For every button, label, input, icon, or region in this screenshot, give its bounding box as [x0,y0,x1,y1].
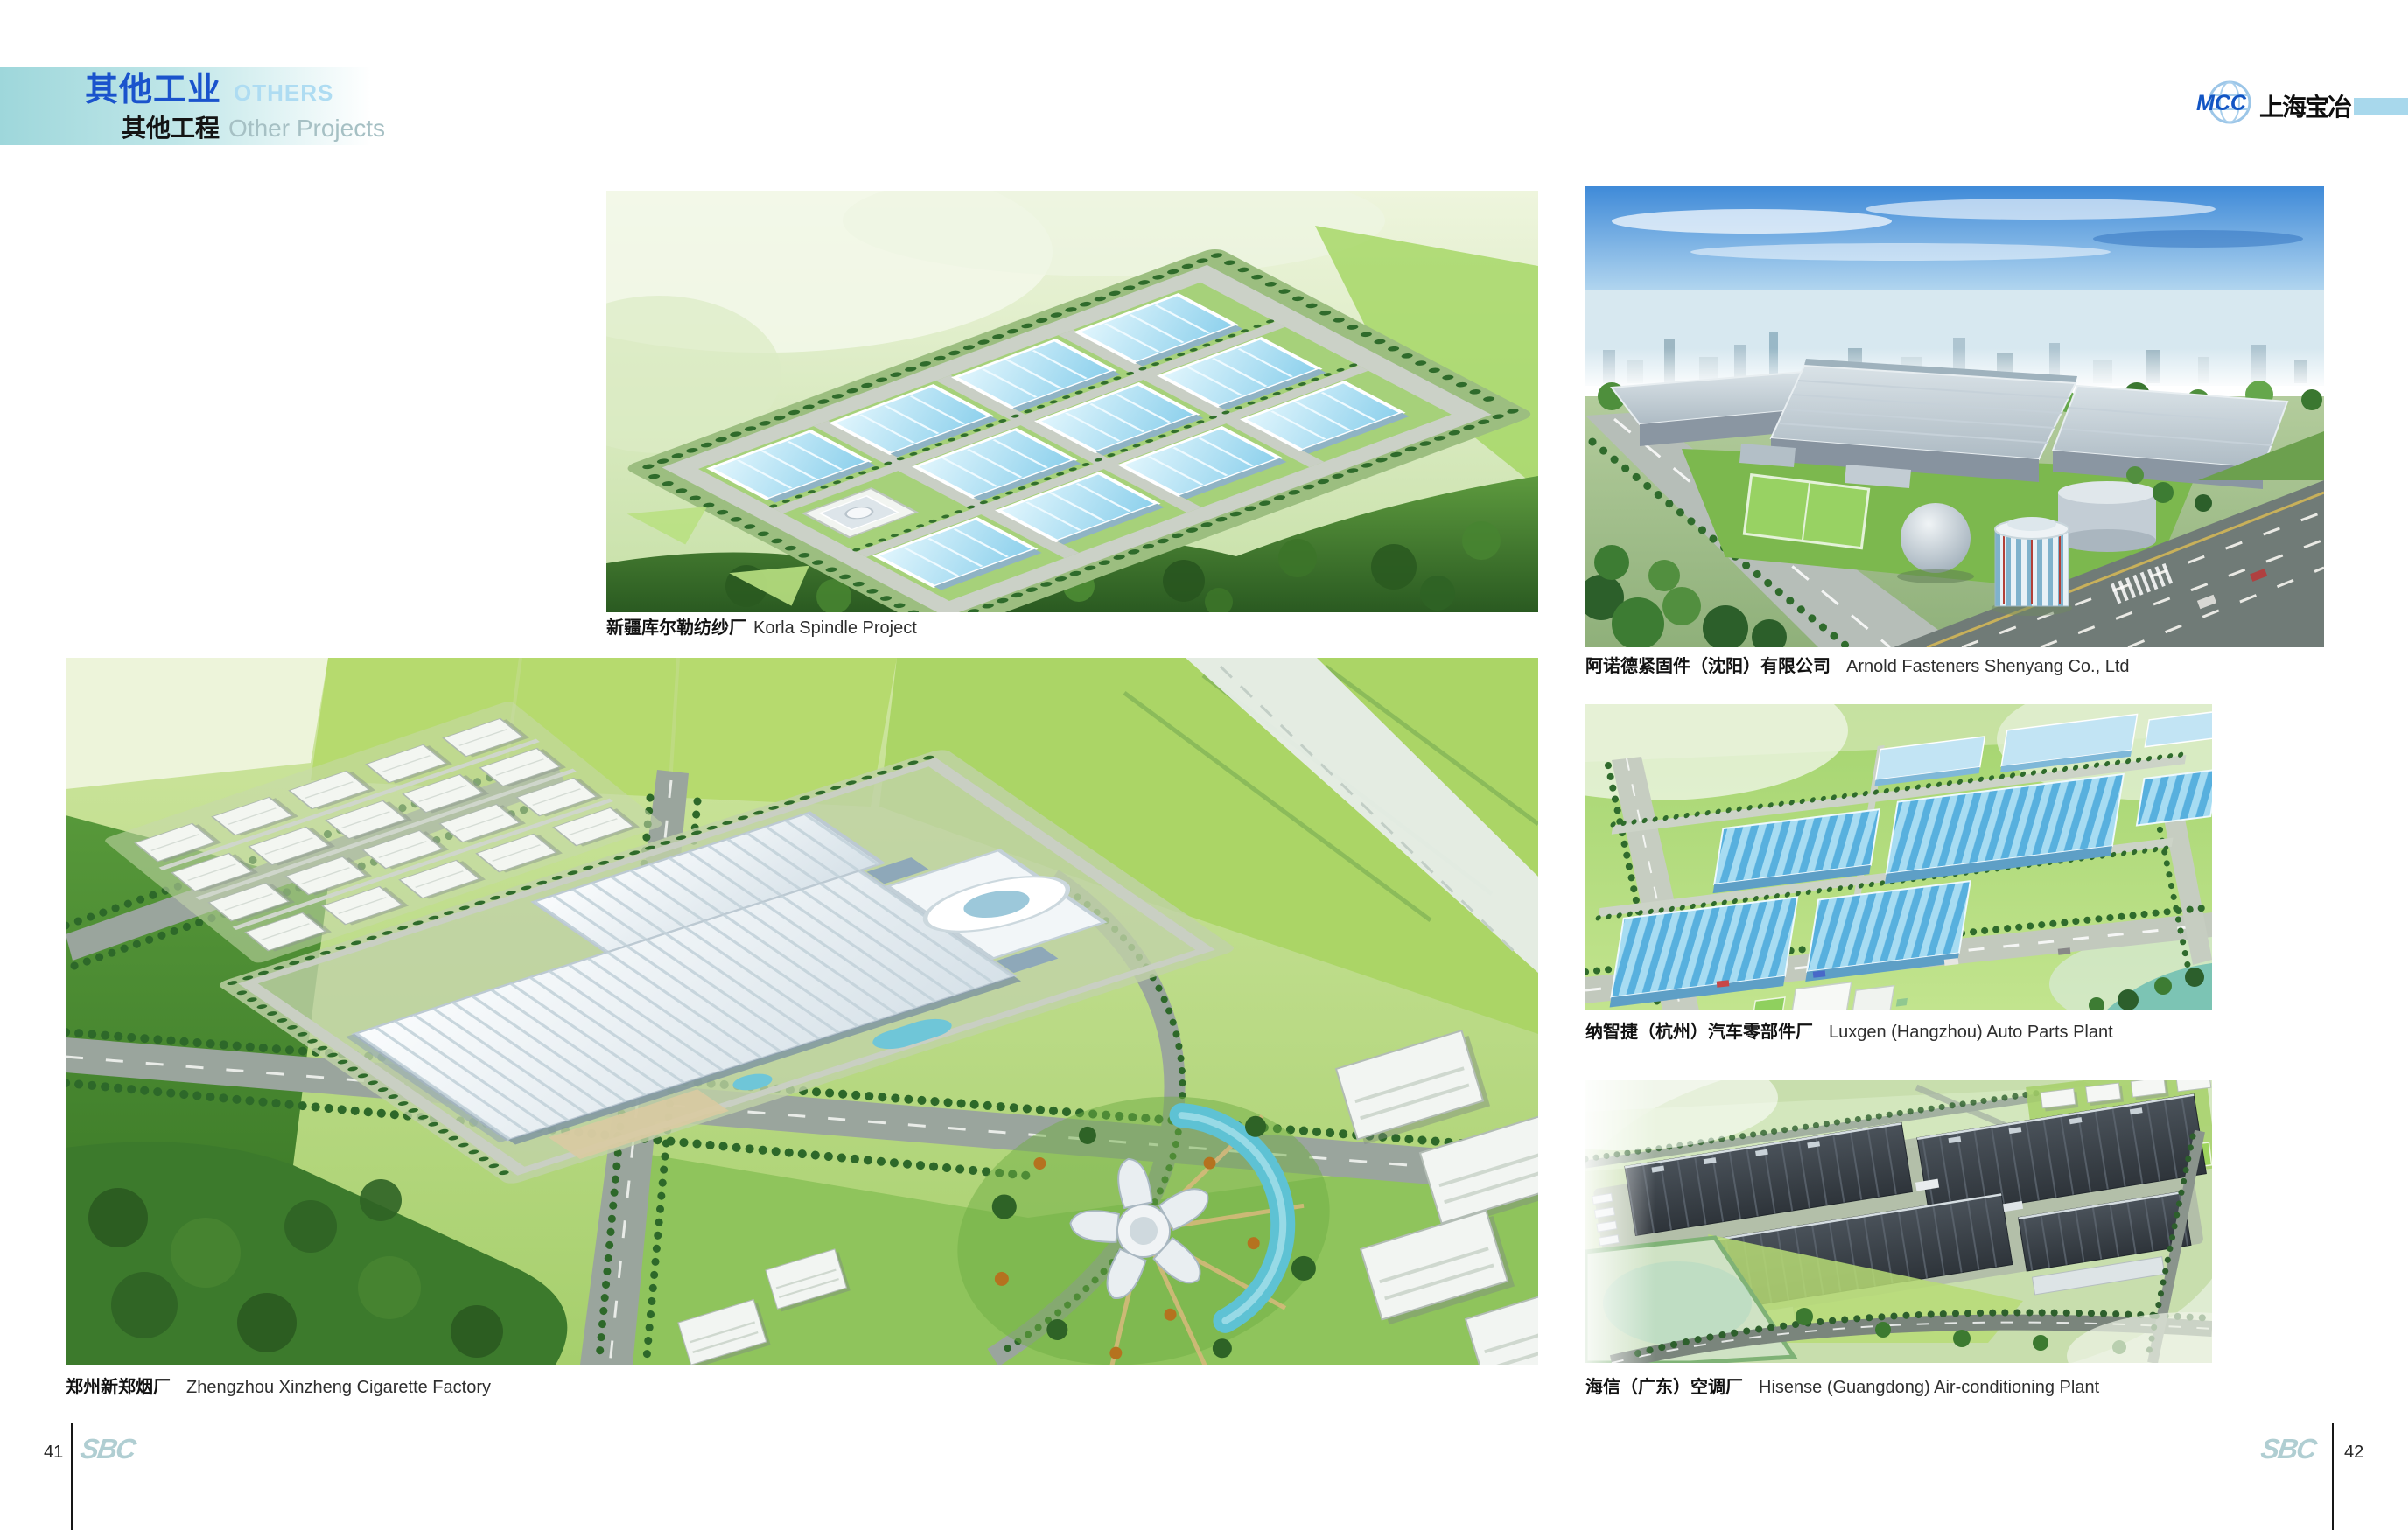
page-subtitle-zh: 其他工程 [122,115,220,142]
caption-zh: 阿诺德紧固件（沈阳）有限公司 [1585,657,1830,676]
figure-luxgen-auto-parts: 纳智捷（杭州）汽车零部件厂Luxgen (Hangzhou) Auto Part… [1585,704,2212,1010]
caption-zh: 新疆库尔勒纺纱厂 [606,618,746,638]
page-subtitle: 其他工程Other Projects [122,116,385,141]
caption-zh: 郑州新郑烟厂 [66,1378,171,1397]
brand-accent-bar [2354,98,2408,115]
caption-zh: 纳智捷（杭州）汽车零部件厂 [1585,1023,1813,1042]
figure-zhengzhou-cigarette: 郑州新郑烟厂Zhengzhou Xinzheng Cigarette Facto… [66,658,1538,1365]
footer-rule-left [71,1423,73,1530]
page-subtitle-en: Other Projects [228,115,385,142]
luxgen-auto-parts-aerial-rendering [1585,704,2212,1010]
page-number-right: 42 [2344,1443,2363,1463]
caption-en: Luxgen (Hangzhou) Auto Parts Plant [1829,1023,2113,1042]
hisense-aircon-aerial-rendering [1585,1080,2212,1363]
figure-caption: 海信（广东）空调厂Hisense (Guangdong) Air-conditi… [1585,1377,2099,1398]
figure-caption: 新疆库尔勒纺纱厂Korla Spindle Project [606,618,917,639]
sbc-watermark-left: SBC [78,1433,136,1465]
caption-zh: 海信（广东）空调厂 [1585,1378,1743,1397]
mcc-logo-text: MCC [2196,91,2246,116]
company-name: 上海宝冶 [2259,88,2350,123]
sbc-watermark-right: SBC [2258,1433,2317,1465]
figure-hisense-aircon: 海信（广东）空调厂Hisense (Guangdong) Air-conditi… [1585,1080,2212,1363]
caption-en: Zhengzhou Xinzheng Cigarette Factory [186,1378,491,1397]
zhengzhou-cigarette-aerial-rendering [66,658,1538,1365]
caption-en: Arnold Fasteners Shenyang Co., Ltd [1846,657,2130,676]
caption-en: Korla Spindle Project [753,618,917,638]
figure-korla-spindle: 新疆库尔勒纺纱厂Korla Spindle Project [606,191,1538,612]
page-title-en: OTHERS [234,80,333,106]
page-title-zh: 其他工业 [85,72,221,108]
caption-en: Hisense (Guangdong) Air-conditioning Pla… [1759,1378,2099,1397]
footer-rule-right [2332,1423,2334,1530]
page-title: 其他工业OTHERS [85,73,333,107]
figure-caption: 纳智捷（杭州）汽车零部件厂Luxgen (Hangzhou) Auto Part… [1585,1022,2113,1043]
figure-arnold-fasteners: 阿诺德紧固件（沈阳）有限公司Arnold Fasteners Shenyang … [1585,186,2324,647]
korla-spindle-aerial-rendering [606,191,1538,612]
figure-caption: 阿诺德紧固件（沈阳）有限公司Arnold Fasteners Shenyang … [1585,656,2130,677]
arnold-fasteners-aerial-rendering [1585,186,2324,647]
figure-caption: 郑州新郑烟厂Zhengzhou Xinzheng Cigarette Facto… [66,1377,491,1398]
page-number-left: 41 [44,1443,63,1463]
